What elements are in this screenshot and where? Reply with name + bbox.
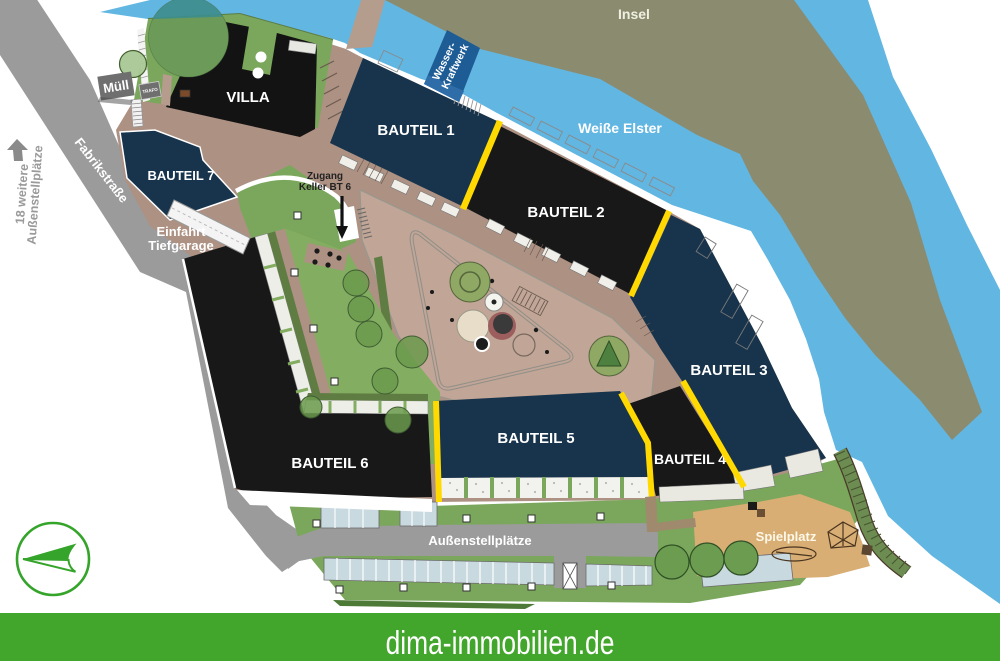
svg-text:BAUTEIL 5: BAUTEIL 5 [497,430,574,447]
svg-text:BAUTEIL 2: BAUTEIL 2 [527,204,604,221]
svg-text:dima-immobilien.de: dima-immobilien.de [386,625,615,661]
svg-text:Weiße Elster: Weiße Elster [578,120,662,136]
svg-text:Insel: Insel [618,6,650,22]
svg-text:BAUTEIL 7: BAUTEIL 7 [148,168,215,183]
svg-text:Außenstellplätze: Außenstellplätze [428,533,531,548]
svg-text:BAUTEIL 4: BAUTEIL 4 [654,451,726,467]
svg-text:Zugang: Zugang [307,171,343,182]
svg-text:Spielplatz: Spielplatz [756,529,817,544]
svg-text:Keller BT 6: Keller BT 6 [299,182,352,193]
svg-text:VILLA: VILLA [226,89,269,106]
svg-text:BAUTEIL 3: BAUTEIL 3 [690,362,767,379]
svg-text:Einfahrt: Einfahrt [156,224,206,239]
svg-text:BAUTEIL 1: BAUTEIL 1 [377,122,454,139]
svg-text:Tiefgarage: Tiefgarage [148,238,214,253]
svg-text:BAUTEIL 6: BAUTEIL 6 [291,455,368,472]
